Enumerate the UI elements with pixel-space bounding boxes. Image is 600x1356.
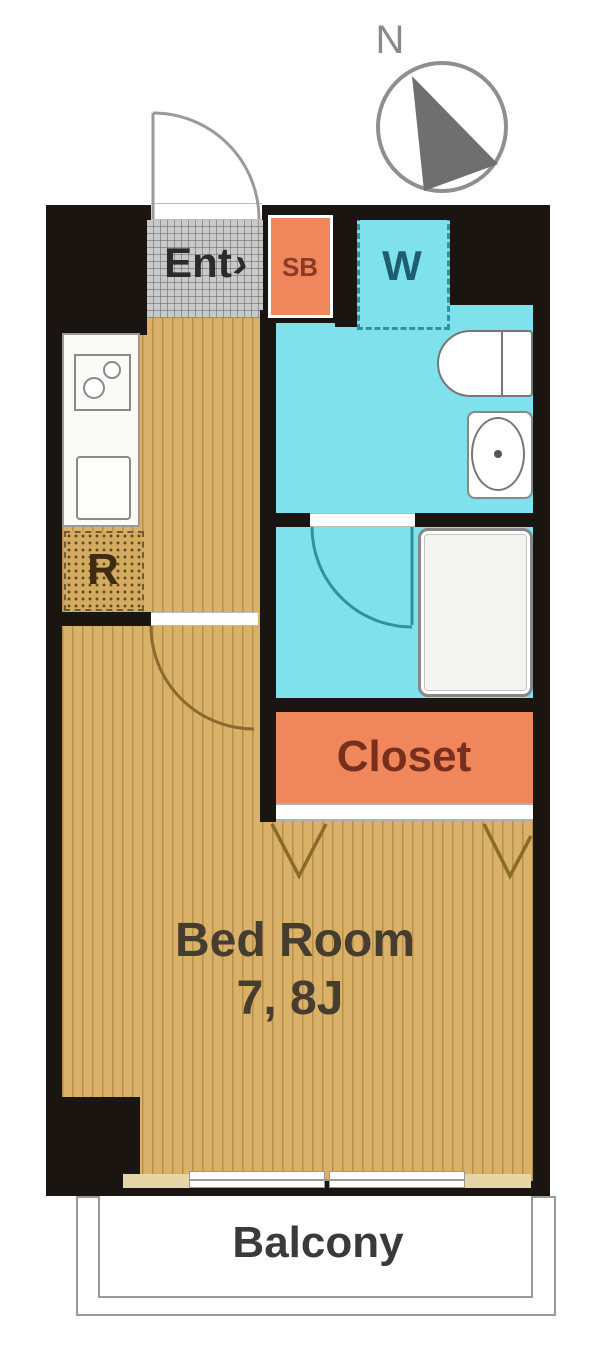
refrigerator-label: R (87, 548, 119, 592)
balcony-label: Balcony (232, 1221, 403, 1265)
wall-block-top-right (450, 205, 546, 305)
stove-burner-icon (83, 377, 105, 399)
wall-bathroom-bottom (276, 698, 550, 712)
sink-drain-icon (494, 450, 502, 458)
bedroom-door-opening (151, 612, 258, 626)
bedroom-label: Bed Room (175, 917, 415, 965)
bathtub (418, 528, 533, 697)
window-sill (123, 1174, 189, 1188)
entrance-label-text: Ent (164, 239, 232, 286)
wall-kitchen-bottom (46, 612, 151, 626)
compass-icon (378, 63, 506, 191)
stove-burner-icon (103, 361, 121, 379)
wall-left (46, 205, 62, 1196)
closet-label: Closet (337, 735, 471, 779)
bedroom-size-label: 7, 8J (237, 975, 344, 1023)
compass-north-label: N (376, 20, 405, 60)
toilet-tank-divider (501, 332, 503, 395)
washing-machine-label: W (382, 245, 422, 287)
washroom-floor-corner (450, 305, 533, 327)
toilet (437, 330, 533, 397)
closet-door-band (276, 803, 533, 821)
window-track-line (189, 1179, 465, 1181)
pillar-top-left (46, 205, 147, 335)
window-sill (465, 1174, 531, 1188)
entrance-door-opening (151, 203, 262, 220)
entrance-label: Ent› (164, 242, 248, 284)
floor-plan: N Ent› SB W R Closet Bed Room 7, 8J Balc… (0, 0, 600, 1356)
kitchen-sink (76, 456, 131, 520)
wall-hall-divider (260, 310, 276, 822)
shoe-box-label: SB (282, 254, 318, 280)
bathroom-door-opening (310, 513, 415, 527)
wall-block-mid-top (335, 205, 357, 327)
